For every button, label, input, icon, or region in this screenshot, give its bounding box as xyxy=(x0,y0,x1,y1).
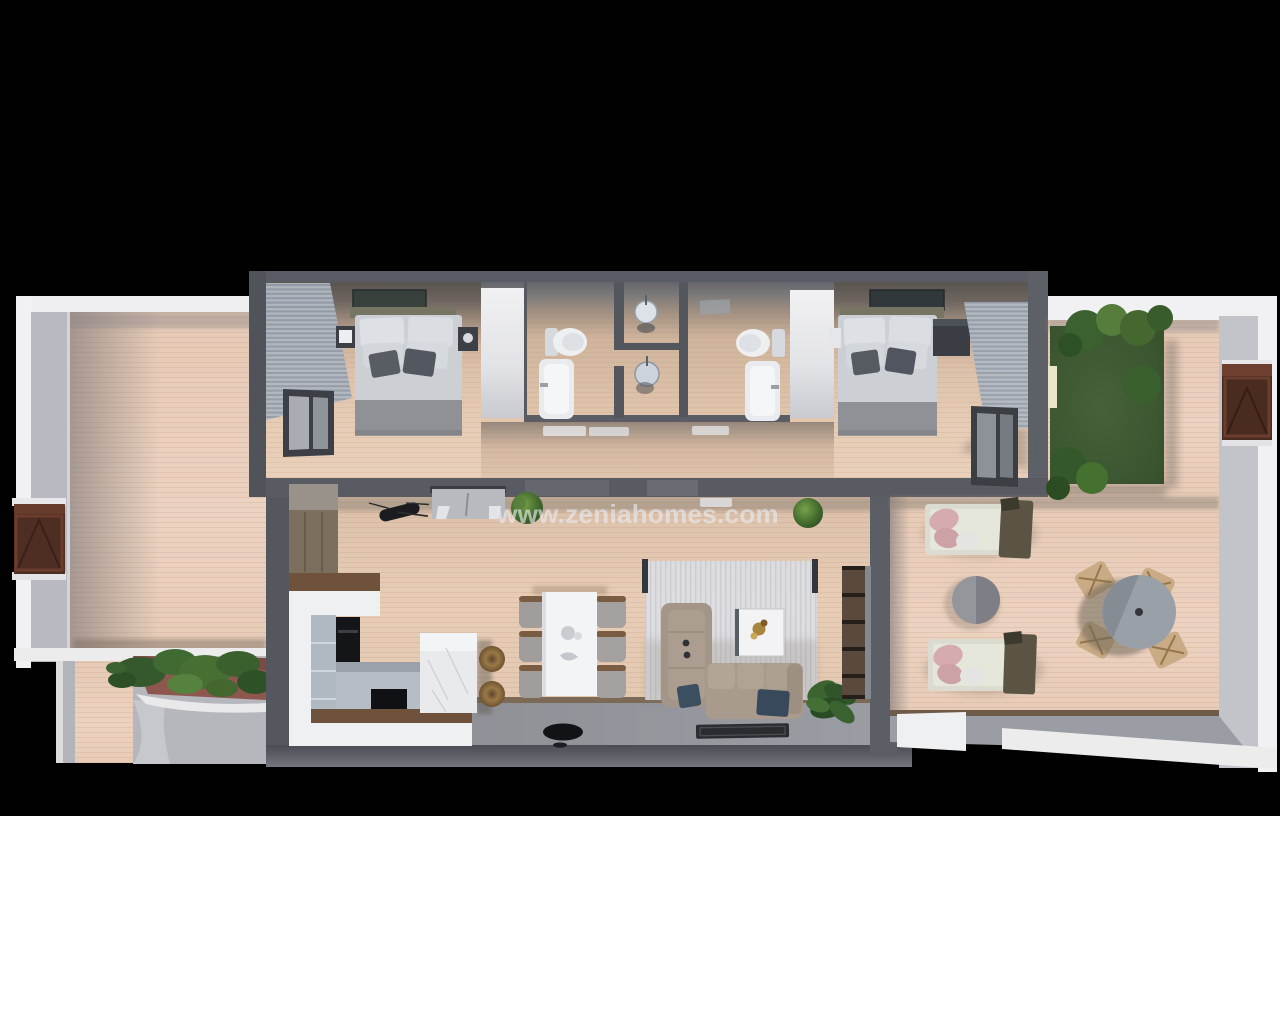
svg-text:www.zeniahomes.com: www.zeniahomes.com xyxy=(496,499,779,529)
